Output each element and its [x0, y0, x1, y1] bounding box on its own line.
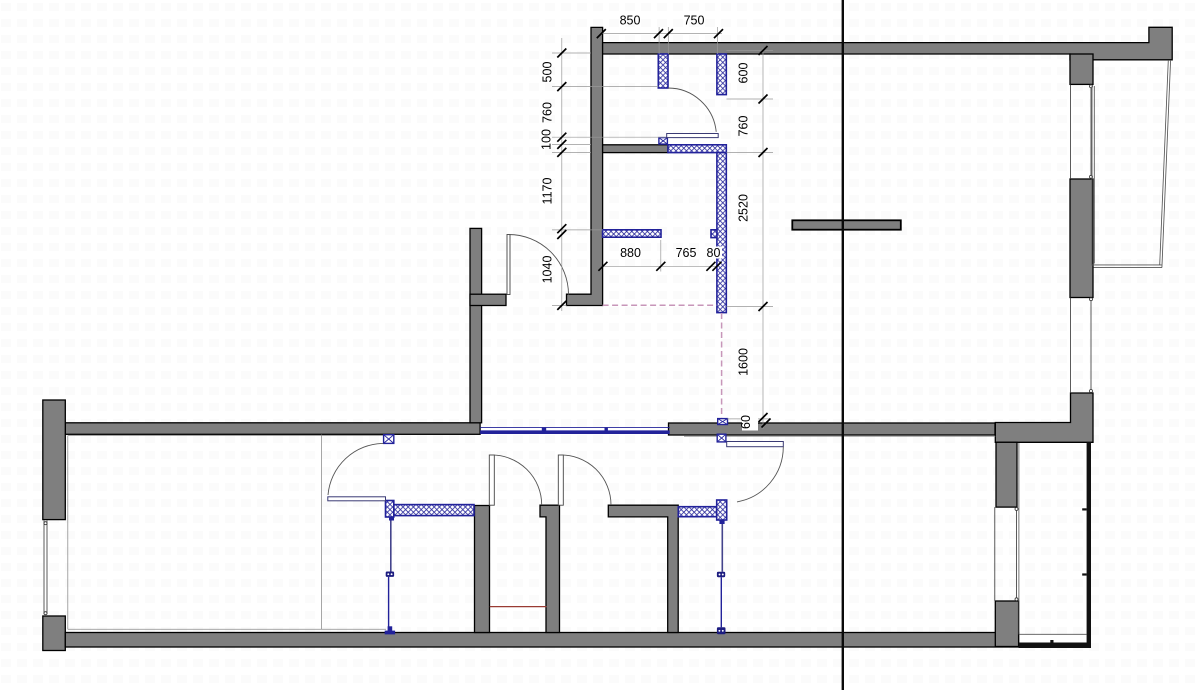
- svg-text:1040: 1040: [541, 256, 555, 284]
- svg-text:60: 60: [739, 415, 753, 429]
- svg-text:600: 600: [737, 63, 751, 84]
- svg-text:880: 880: [620, 246, 641, 260]
- svg-text:1170: 1170: [541, 178, 555, 205]
- svg-text:760: 760: [737, 116, 751, 137]
- svg-text:1600: 1600: [737, 348, 751, 376]
- svg-text:760: 760: [541, 102, 555, 123]
- svg-text:2520: 2520: [737, 194, 751, 222]
- svg-text:765: 765: [676, 246, 697, 260]
- svg-text:500: 500: [541, 62, 555, 83]
- svg-text:750: 750: [684, 14, 705, 28]
- svg-text:100: 100: [540, 129, 554, 150]
- svg-text:80: 80: [707, 246, 721, 260]
- svg-text:850: 850: [620, 14, 641, 28]
